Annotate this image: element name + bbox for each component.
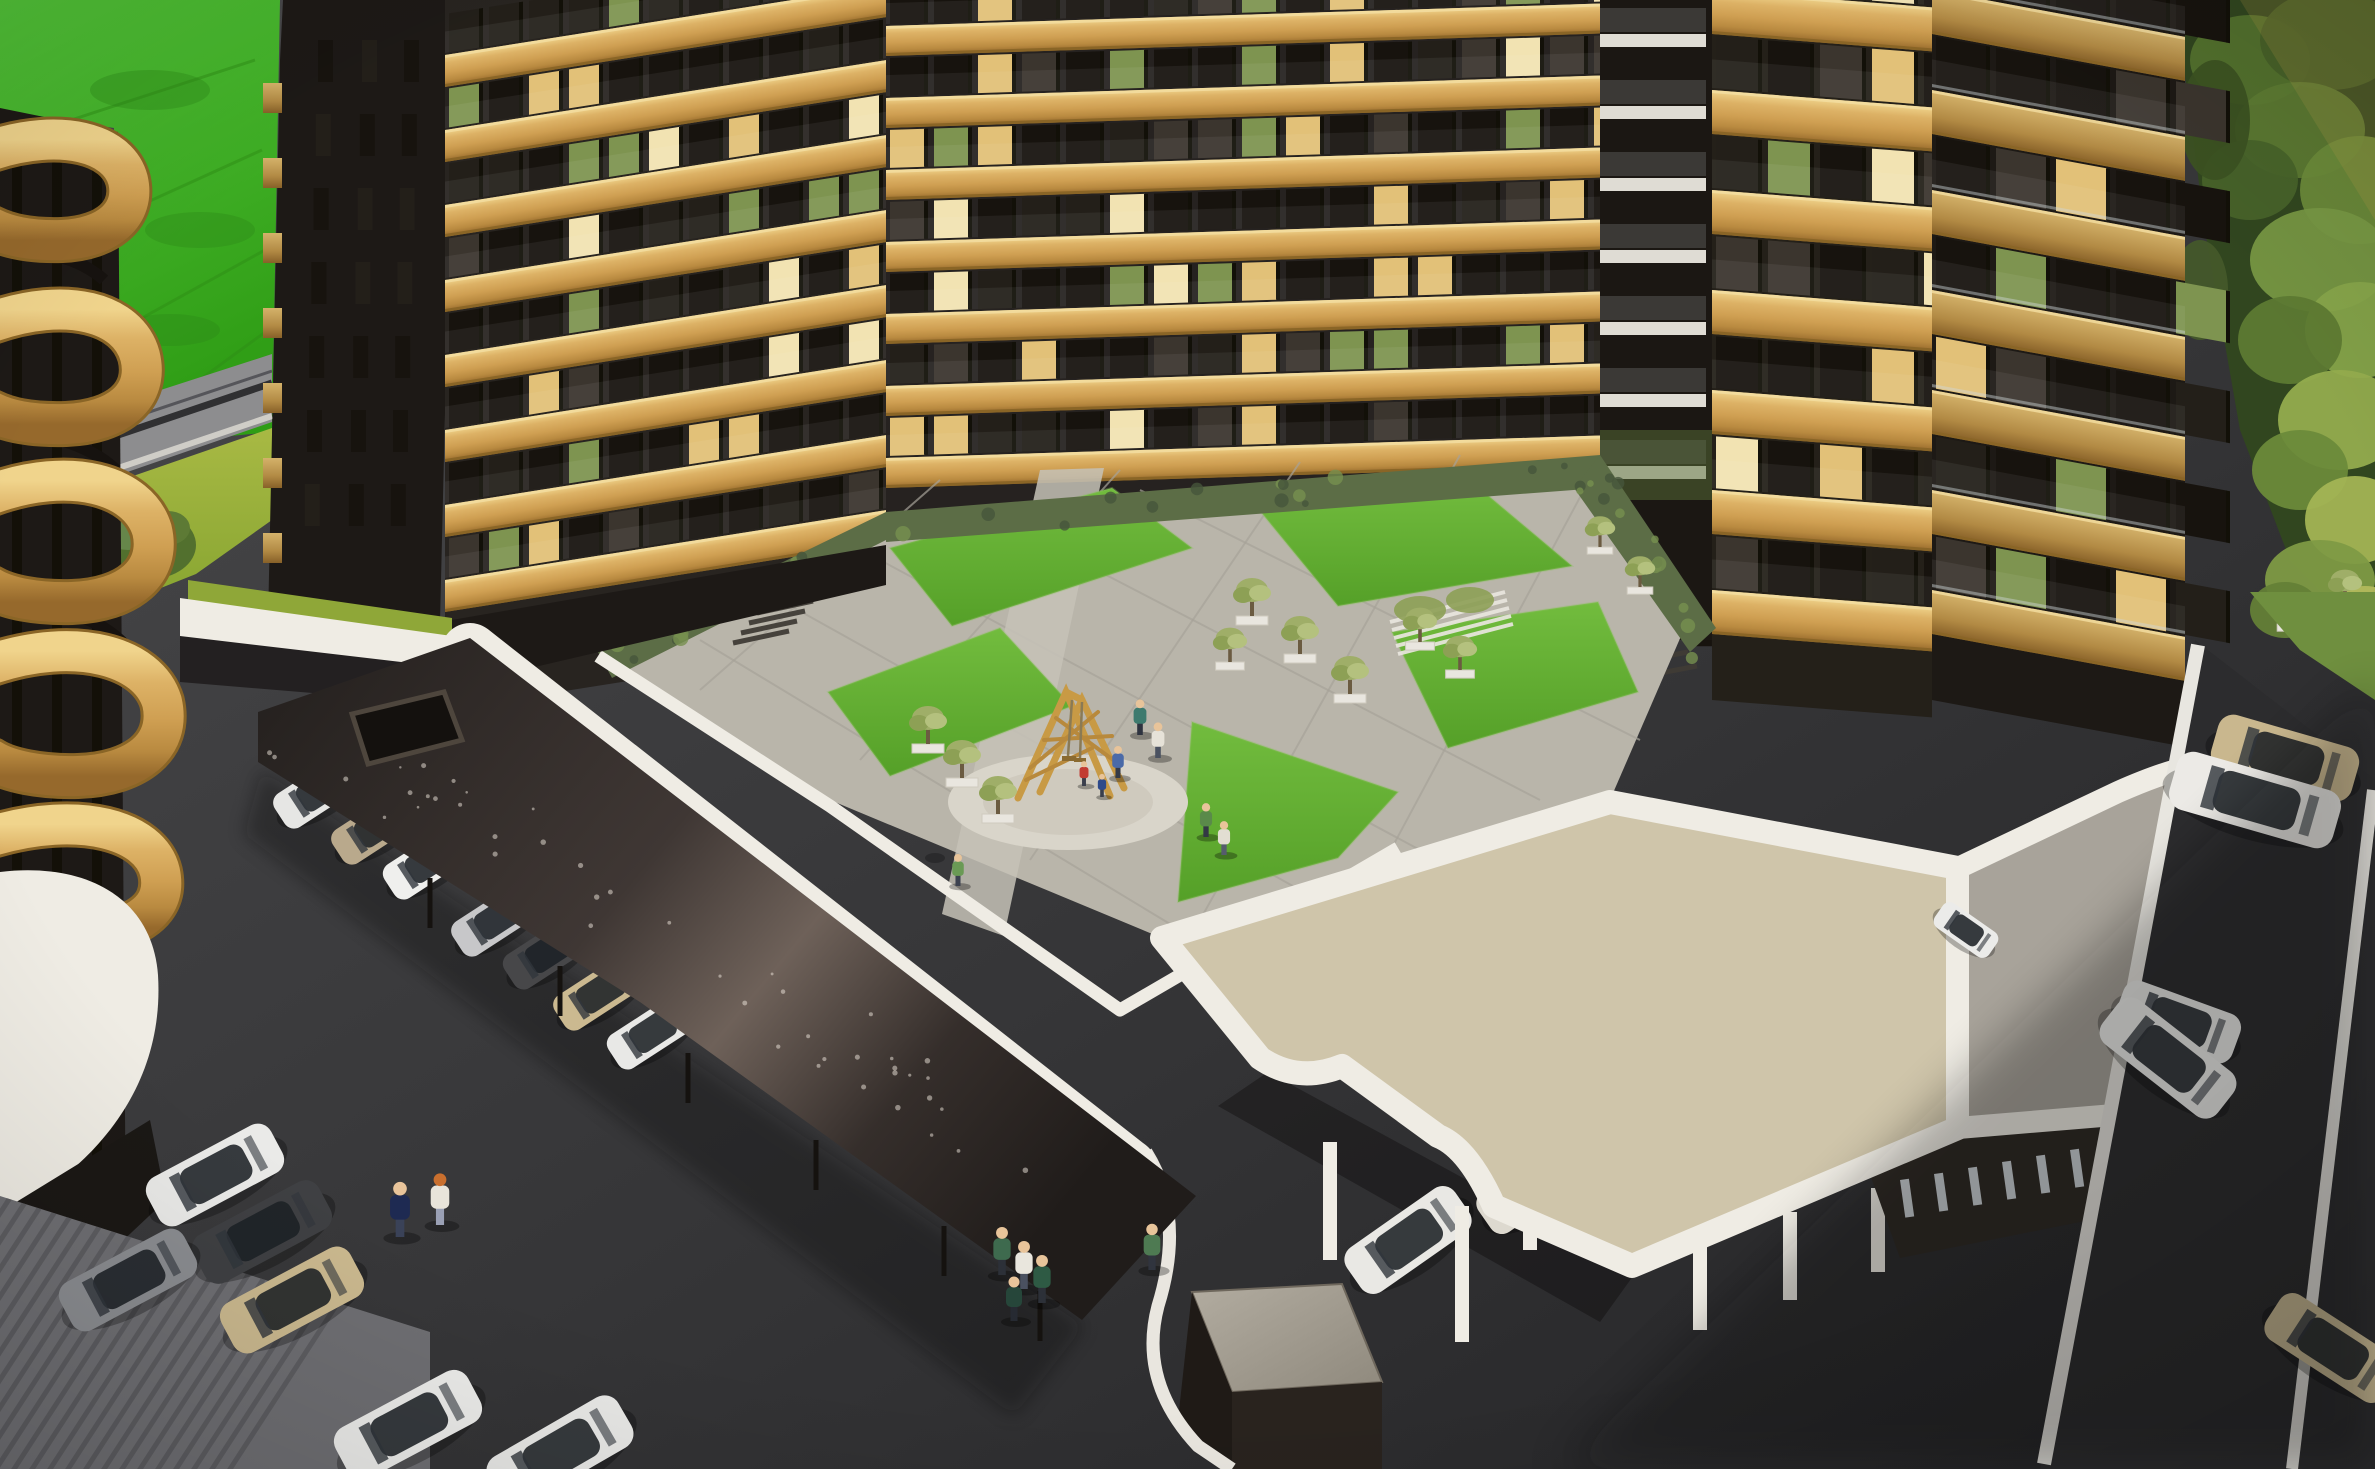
residential-complex-aerial-rendering <box>0 0 2375 1469</box>
rendering-stage <box>0 0 2375 1469</box>
vignette-overlay <box>0 0 2375 1469</box>
